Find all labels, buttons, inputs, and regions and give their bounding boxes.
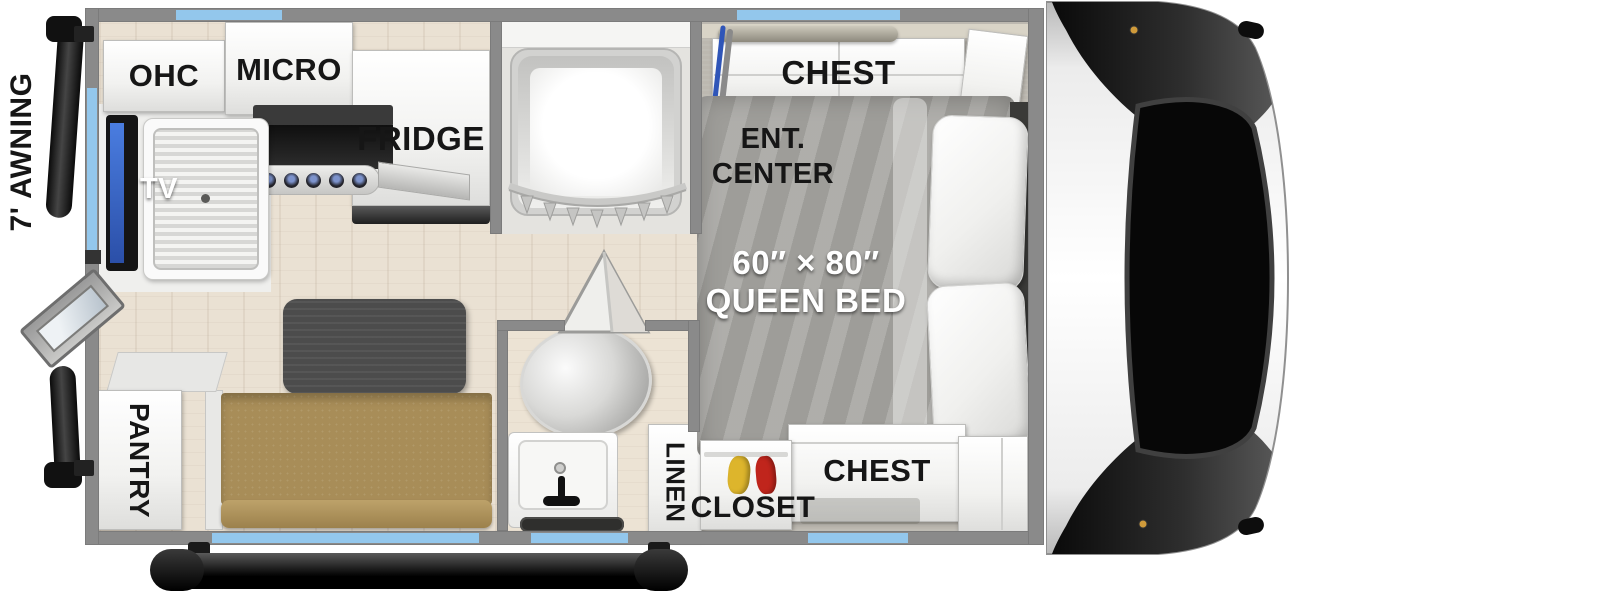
- wall-shower-right: [690, 8, 702, 234]
- window-rear: [87, 88, 97, 252]
- pantry-top-face: [106, 352, 227, 392]
- chest-bottom-seam: [790, 442, 964, 444]
- ent-center-line2: CENTER: [712, 157, 834, 192]
- bumper-cap-left: [150, 549, 204, 591]
- cab-marker-light-top: [1130, 26, 1138, 34]
- sink-drain: [201, 194, 210, 203]
- wall-bath-top-left: [497, 320, 565, 331]
- pantry-label: PANTRY: [96, 392, 182, 528]
- burner-knob: [352, 173, 367, 188]
- awning-bracket-bottom: [74, 460, 94, 476]
- sofa-seat: [221, 393, 492, 505]
- ohc-label: OHC: [103, 58, 225, 94]
- cabinet-door-seam: [1001, 438, 1003, 530]
- kitchen-tv-screen: [110, 123, 124, 263]
- wall-bath-right: [688, 320, 700, 432]
- awning-bracket-top: [74, 26, 94, 42]
- entry-door-hinge: [85, 250, 101, 264]
- window-top-2: [737, 10, 900, 20]
- window-bottom-2: [531, 533, 628, 543]
- ent-center-line1: ENT.: [741, 122, 806, 157]
- awning-arm-top: [45, 19, 85, 218]
- bed-label: 60″ × 80″ QUEEN BED: [690, 240, 922, 324]
- bed-size-label: 60″ × 80″: [732, 244, 879, 282]
- burner-knob: [329, 173, 344, 188]
- wall-shower-left: [490, 8, 502, 234]
- shower-top-cabinet: [502, 22, 690, 48]
- ent-center-label: ENT. CENTER: [702, 118, 844, 196]
- sofa-front-rail: [221, 500, 492, 528]
- window-bottom-3: [808, 533, 908, 543]
- bathroom-bifold-door: [552, 248, 656, 334]
- closet-label: CLOSET: [686, 490, 820, 526]
- shower-curtain: [505, 172, 690, 230]
- closet-rod: [704, 452, 788, 457]
- window-bottom-1: [212, 533, 479, 543]
- window-top-1: [176, 10, 282, 20]
- truck-cab: [1046, 0, 1290, 556]
- bath-floor-mat: [520, 517, 624, 532]
- faucet-handle-bar: [543, 496, 580, 506]
- burner-knob: [284, 173, 299, 188]
- bumper-tube: [162, 553, 686, 589]
- dinette-table: [283, 299, 466, 394]
- burner-knob: [306, 173, 321, 188]
- bedroom-cabinet-bottom-right: [958, 436, 1028, 532]
- awning-label: 7' AWNING: [4, 12, 40, 292]
- bed-pillow: [927, 114, 1029, 291]
- chest-bottom-label: CHEST: [788, 452, 966, 490]
- wall-front-right: [1028, 8, 1044, 545]
- bumper-cap-right: [634, 549, 688, 591]
- faucet-knob: [554, 462, 566, 474]
- cab-marker-light-bottom: [1139, 520, 1147, 528]
- bed-type-label: QUEEN BED: [706, 282, 907, 320]
- fridge-label: FRIDGE: [352, 120, 490, 158]
- fridge-vent: [352, 206, 490, 224]
- tv-mount-rod: [718, 26, 898, 42]
- wall-bath-left: [497, 320, 508, 531]
- chest-top-label: CHEST: [712, 53, 965, 93]
- micro-label: MICRO: [225, 52, 353, 88]
- floorplan-canvas: 7' AWNING OHC MICRO FRIDGE TV PANTRY LIN…: [0, 0, 1600, 593]
- tv-label: TV: [130, 172, 188, 206]
- cab-windshield: [1127, 100, 1272, 457]
